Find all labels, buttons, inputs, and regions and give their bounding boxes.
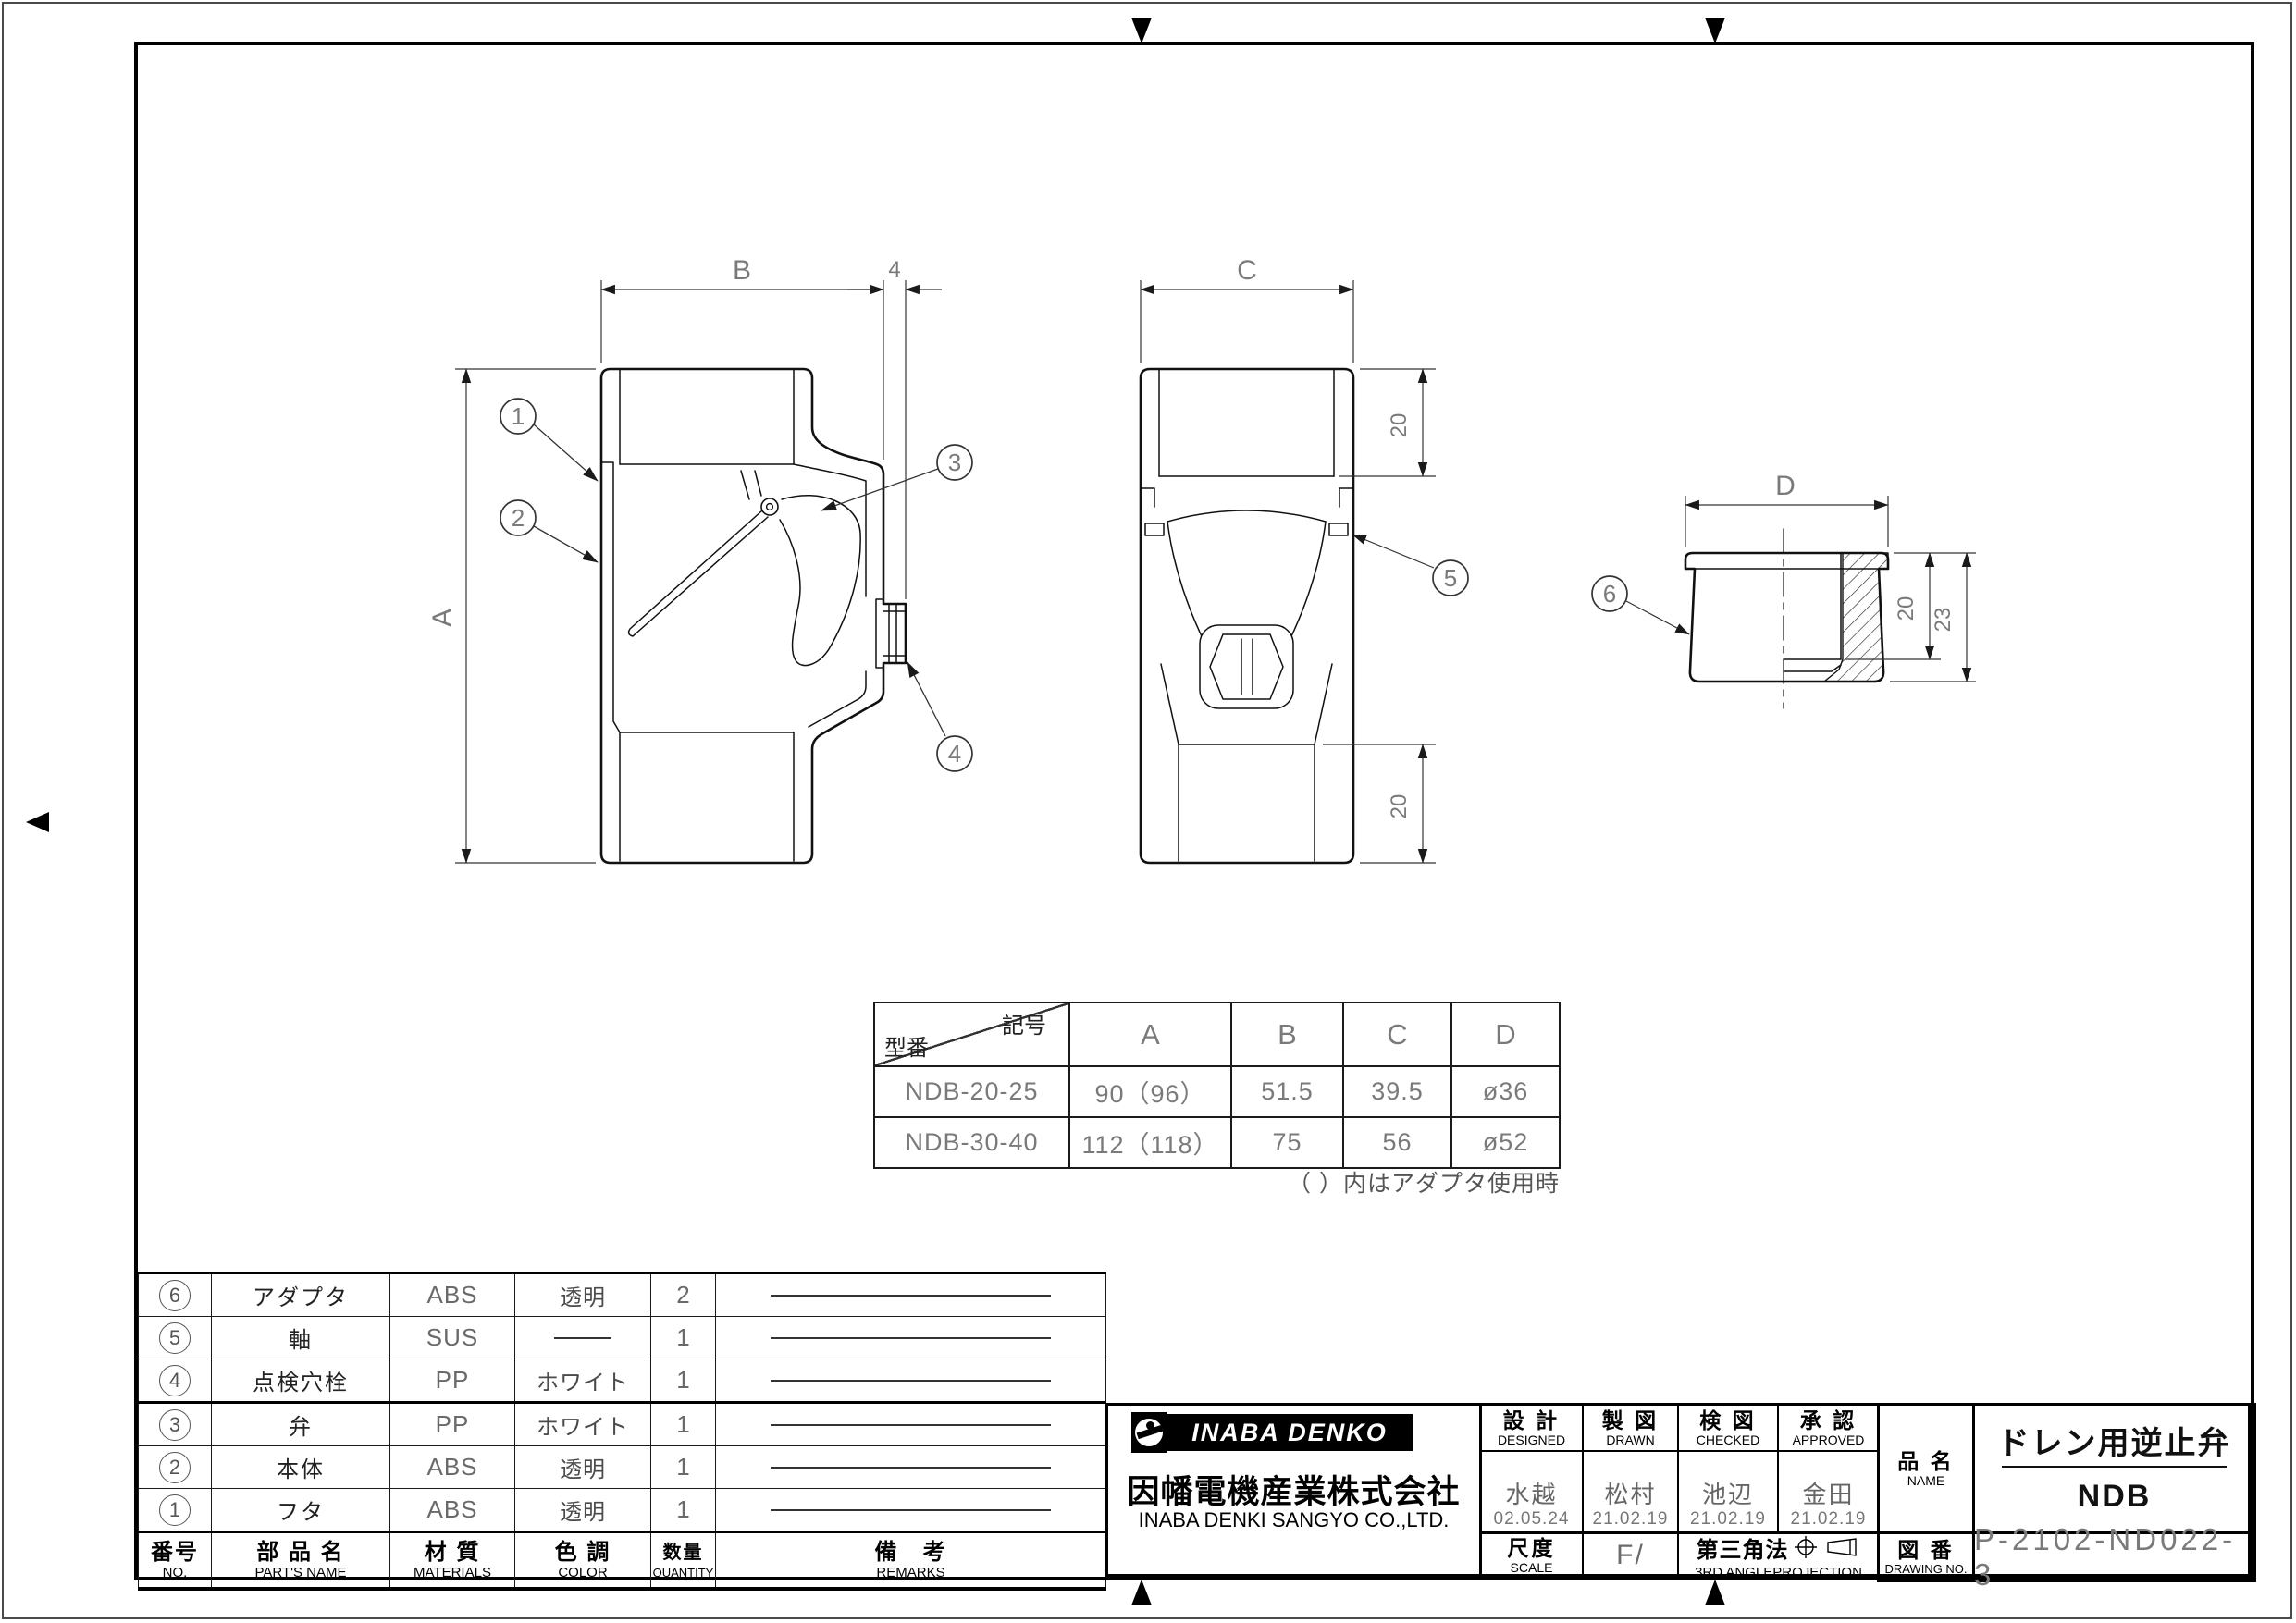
part-color: 透明 — [515, 1273, 651, 1317]
dim-label-23: 23 — [1931, 608, 1956, 633]
remarks-line — [771, 1295, 1051, 1297]
drawing-sheet: B 4 A 1 2 3 4 — [0, 0, 2296, 1623]
dim-label-top-20: 20 — [1387, 413, 1412, 438]
corner-label-symbol: 記号 — [1002, 1007, 1046, 1039]
dim-table-row: NDB-30-40 112（118） 75 56 ø52 — [874, 1117, 1560, 1168]
dim-label-20: 20 — [1894, 596, 1919, 621]
part-name: 弁 — [212, 1403, 390, 1446]
scale-value: F/ — [1616, 1540, 1645, 1571]
designer-name: 水越 — [1481, 1476, 1582, 1510]
part-material: SUS — [390, 1317, 515, 1359]
header-color-en: COLOR — [515, 1565, 650, 1580]
header-no-en: NO. — [139, 1565, 211, 1580]
dimension-table: 記号 型番 A B C D NDB-20-25 90（96） 51.5 39.5… — [873, 1002, 1561, 1169]
designed-label-cell: 設 計DESIGNED — [1479, 1403, 1584, 1452]
approved-date: 21.02.19 — [1779, 1509, 1878, 1530]
dim-label-B: B — [733, 255, 751, 286]
part-name: 点検穴栓 — [212, 1359, 390, 1403]
drawn-label-en: DRAWN — [1606, 1432, 1654, 1447]
brand-bar: INABA DENKO — [1167, 1414, 1413, 1451]
dim-label-bottom-20: 20 — [1387, 794, 1412, 819]
dim-value: 90（96） — [1069, 1066, 1231, 1117]
scale-label-en: SCALE — [1511, 1560, 1553, 1575]
drawing-number: P-2102-ND022-3 — [1974, 1533, 2254, 1580]
dim-label-A: A — [427, 609, 458, 627]
part-number-badge: 5 — [159, 1322, 191, 1354]
remarks-line — [771, 1337, 1051, 1339]
parts-row-2: 2 本体 ABS 透明 1 — [139, 1446, 1106, 1489]
company-name-en: INABA DENKI SANGYO CO.,LTD. — [1107, 1508, 1480, 1532]
part-material: ABS — [390, 1273, 515, 1317]
side-view — [1141, 369, 1353, 863]
checked-label-cell: 検 図CHECKED — [1677, 1403, 1779, 1452]
approved-label-en: APPROVED — [1793, 1432, 1865, 1447]
projection-cell: 第三角法 3RD ANGLEPROJECTION — [1677, 1531, 1880, 1580]
part-material: PP — [390, 1403, 515, 1446]
part-qty: 1 — [651, 1359, 716, 1403]
part-qty: 1 — [651, 1317, 716, 1359]
front-view-balloons — [500, 399, 972, 771]
front-section-view — [601, 369, 906, 863]
drawn-value-cell: 松村 21.02.19 — [1582, 1450, 1679, 1534]
company-name-jp: 因幡電機産業株式会社 — [1107, 1466, 1480, 1513]
name-label-cell: 品 名NAME — [1877, 1403, 1975, 1534]
drawing-no-value-cell: P-2102-ND022-3 — [1972, 1531, 2256, 1582]
balloon-4: 4 — [948, 740, 961, 768]
header-material-en: MATERIALS — [390, 1565, 514, 1580]
part-qty: 1 — [651, 1446, 716, 1489]
drawing-no-label-cell: 図 番DRAWING NO. — [1877, 1531, 1975, 1582]
balloon-5: 5 — [1444, 564, 1457, 592]
remarks-line — [771, 1380, 1051, 1382]
dim-col-B: B — [1231, 1002, 1343, 1066]
header-name-jp: 部 品 名 — [212, 1541, 389, 1565]
part-qty: 2 — [651, 1273, 716, 1317]
side-view-dimensions — [1141, 280, 1468, 863]
drawing-no-label-en: DRAWING NO. — [1884, 1562, 1967, 1577]
checked-value-cell: 池辺 21.02.19 — [1677, 1450, 1779, 1534]
dim-value: 75 — [1231, 1117, 1343, 1168]
dim-value: 112（118） — [1069, 1117, 1231, 1168]
parts-table: 6 アダプタ ABS 透明 2 5 軸 SUS 1 4 点検穴栓 PP ホワイト… — [138, 1272, 1106, 1591]
drawn-label-jp: 製 図 — [1602, 1408, 1659, 1432]
valve-pivot — [761, 498, 778, 515]
part-number-badge: 3 — [159, 1409, 191, 1441]
part-material: ABS — [390, 1446, 515, 1489]
scale-label-jp: 尺度 — [1508, 1536, 1556, 1560]
header-name-en: PART'S NAME — [212, 1565, 389, 1580]
product-name-separator — [2002, 1466, 2226, 1468]
projection-label-jp: 第三角法 — [1697, 1531, 1789, 1564]
dim-table-row: NDB-20-25 90（96） 51.5 39.5 ø36 — [874, 1066, 1560, 1117]
front-view-dimensions — [455, 280, 942, 863]
header-remarks-jp: 備 考 — [716, 1541, 1105, 1565]
inaba-logo-icon — [1131, 1412, 1167, 1453]
checker-name: 池辺 — [1679, 1476, 1777, 1510]
brand-text: INABA DENKO — [1191, 1419, 1388, 1447]
dim-label-D: D — [1775, 471, 1796, 501]
part-number-badge: 6 — [159, 1280, 191, 1311]
designed-date: 02.05.24 — [1481, 1509, 1582, 1530]
color-dash-line — [554, 1337, 611, 1339]
checked-label-jp: 検 図 — [1699, 1408, 1756, 1432]
model-name: NDB-20-25 — [874, 1066, 1069, 1117]
parts-table-header: 番号NO. 部 品 名PART'S NAME 材 質MATERIALS 色 調C… — [139, 1532, 1106, 1590]
name-label-en: NAME — [1907, 1473, 1944, 1488]
part-name: 軸 — [212, 1317, 390, 1359]
corner-label-model: 型番 — [884, 1029, 929, 1062]
dim-value: ø52 — [1451, 1117, 1560, 1168]
approved-label-cell: 承 認APPROVED — [1777, 1403, 1880, 1452]
dim-col-D: D — [1451, 1002, 1560, 1066]
header-material-jp: 材 質 — [390, 1541, 514, 1565]
dim-table-corner: 記号 型番 — [874, 1002, 1069, 1066]
part-qty: 1 — [651, 1403, 716, 1446]
dim-value: 39.5 — [1343, 1066, 1451, 1117]
part-name: 本体 — [212, 1446, 390, 1489]
designed-value-cell: 水越 02.05.24 — [1479, 1450, 1584, 1534]
header-qty-en: QUANTITY — [651, 1565, 715, 1580]
balloon-2: 2 — [512, 504, 525, 532]
parts-row-1: 1 フタ ABS 透明 1 — [139, 1489, 1106, 1532]
parts-row-3: 3 弁 PP ホワイト 1 — [139, 1403, 1106, 1446]
projection-label-en: 3RD ANGLEPROJECTION — [1695, 1565, 1862, 1580]
name-value-cell: ドレン用逆止弁 NDB — [1972, 1403, 2256, 1534]
product-name: ドレン用逆止弁 — [1974, 1418, 2254, 1463]
dim-label-4: 4 — [888, 257, 900, 282]
dim-col-C: C — [1343, 1002, 1451, 1066]
part-material: ABS — [390, 1489, 515, 1532]
balloon-3: 3 — [948, 449, 961, 476]
part-material: PP — [390, 1359, 515, 1403]
remarks-line — [771, 1509, 1051, 1511]
parts-row-6: 6 アダプタ ABS 透明 2 — [139, 1273, 1106, 1317]
drafter-name: 松村 — [1584, 1476, 1677, 1510]
header-no-jp: 番号 — [139, 1541, 211, 1565]
drawing-no-label-jp: 図 番 — [1897, 1538, 1954, 1562]
dim-col-A: A — [1069, 1002, 1231, 1066]
third-angle-projection-icon — [1795, 1536, 1861, 1558]
checked-label-en: CHECKED — [1697, 1432, 1759, 1447]
part-number-badge: 1 — [159, 1494, 191, 1526]
part-number-badge: 2 — [159, 1452, 191, 1483]
balloon-6: 6 — [1603, 580, 1616, 608]
dim-value: ø36 — [1451, 1066, 1560, 1117]
part-color: ホワイト — [515, 1403, 651, 1446]
header-qty-jp: 数量 — [651, 1541, 715, 1565]
approved-value-cell: 金田 21.02.19 — [1777, 1450, 1880, 1534]
part-name: アダプタ — [212, 1273, 390, 1317]
designed-label-jp: 設 計 — [1503, 1408, 1560, 1432]
part-number-badge: 4 — [159, 1365, 191, 1396]
title-block: INABA DENKO 因幡電機産業株式会社 INABA DENKI SANGY… — [1105, 1403, 2251, 1577]
parts-row-4: 4 点検穴栓 PP ホワイト 1 — [139, 1359, 1106, 1403]
header-color-jp: 色 調 — [515, 1541, 650, 1565]
company-cell: INABA DENKO 因幡電機産業株式会社 INABA DENKI SANGY… — [1105, 1403, 1482, 1580]
scale-value-cell: F/ — [1582, 1531, 1679, 1580]
header-remarks-en: REMARKS — [716, 1565, 1105, 1580]
balloon-1: 1 — [512, 402, 525, 430]
adapter-view — [1685, 529, 1888, 708]
name-label-jp: 品 名 — [1897, 1449, 1954, 1473]
approved-label-jp: 承 認 — [1800, 1408, 1857, 1432]
part-qty: 1 — [651, 1489, 716, 1532]
part-color: 透明 — [515, 1446, 651, 1489]
product-model: NDB — [1974, 1479, 2254, 1515]
part-color: 透明 — [515, 1489, 651, 1532]
scale-label-cell: 尺度SCALE — [1479, 1531, 1584, 1580]
dim-value: 51.5 — [1231, 1066, 1343, 1117]
adapter-note: （ ）内はアダプタ使用時 — [1240, 1165, 1560, 1199]
part-color: ホワイト — [515, 1359, 651, 1403]
checked-date: 21.02.19 — [1679, 1509, 1777, 1530]
dim-label-C: C — [1237, 255, 1257, 286]
remarks-line — [771, 1467, 1051, 1469]
drawn-date: 21.02.19 — [1584, 1509, 1677, 1530]
part-name: フタ — [212, 1489, 390, 1532]
model-name: NDB-30-40 — [874, 1117, 1069, 1168]
remarks-line — [771, 1424, 1051, 1426]
parts-row-5: 5 軸 SUS 1 — [139, 1317, 1106, 1359]
dim-value: 56 — [1343, 1117, 1451, 1168]
drawn-label-cell: 製 図DRAWN — [1582, 1403, 1679, 1452]
designed-label-en: DESIGNED — [1498, 1432, 1565, 1447]
approver-name: 金田 — [1779, 1476, 1878, 1510]
